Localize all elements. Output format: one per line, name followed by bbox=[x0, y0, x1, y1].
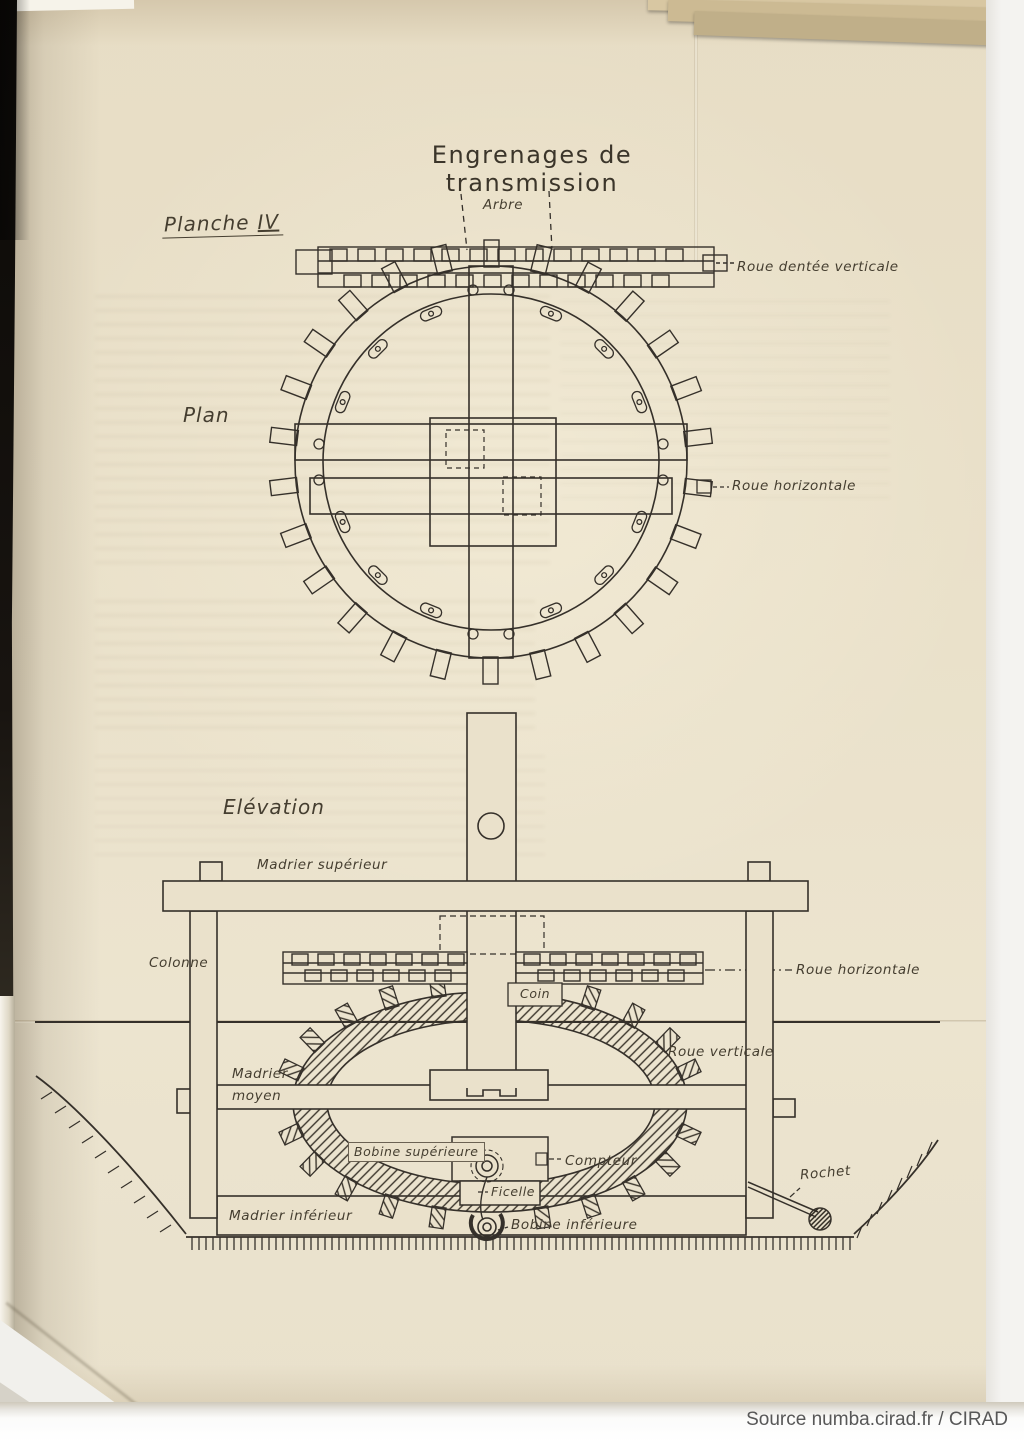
label-bobine-inferieure: Bobine inférieure bbox=[511, 1217, 638, 1233]
label-arbre: Arbre bbox=[483, 197, 523, 213]
label-roue-horizontale-plan: Roue horizontale bbox=[732, 478, 856, 494]
label-madrier-moyen-line1: Madrier bbox=[232, 1066, 288, 1082]
scanned-plate-page: Engrenages de transmission PlancheIV Arb… bbox=[0, 0, 1024, 1442]
scan-background-right bbox=[986, 0, 1024, 1442]
label-madrier-moyen-line2: moyen bbox=[232, 1088, 281, 1104]
plan-gear-teeth bbox=[270, 240, 713, 684]
plate-number: PlancheIV bbox=[162, 209, 284, 238]
plan-rim-links bbox=[334, 305, 648, 619]
label-roue-verticale: Roue verticale bbox=[668, 1044, 774, 1060]
label-madrier-superieur: Madrier supérieur bbox=[257, 857, 387, 873]
label-ficelle: Ficelle bbox=[491, 1184, 535, 1199]
elevation-horizontal-wheel bbox=[283, 952, 792, 984]
label-plan-view: Plan bbox=[183, 403, 230, 427]
label-bobine-superieure: Bobine supérieure bbox=[348, 1142, 485, 1162]
plate-number-numeral: IV bbox=[257, 210, 279, 235]
label-roue-dentee-verticale: Roue dentée verticale bbox=[737, 259, 899, 275]
plate-number-word: Planche bbox=[164, 210, 250, 236]
book-spine-shadow bbox=[0, 0, 30, 240]
label-colonne: Colonne bbox=[149, 955, 208, 971]
plate-title: Engrenages de transmission bbox=[377, 141, 687, 197]
source-attribution: Source numba.cirad.fr / CIRAD bbox=[746, 1409, 1008, 1431]
label-coin: Coin bbox=[520, 986, 550, 1001]
label-elevation-view: Elévation bbox=[223, 795, 325, 819]
label-compteur: Compteur bbox=[565, 1153, 637, 1169]
label-madrier-inferieur: Madrier inférieur bbox=[229, 1208, 352, 1224]
label-roue-horizontale-elevation: Roue horizontale bbox=[796, 962, 920, 978]
plan-view-drawing bbox=[270, 191, 734, 684]
